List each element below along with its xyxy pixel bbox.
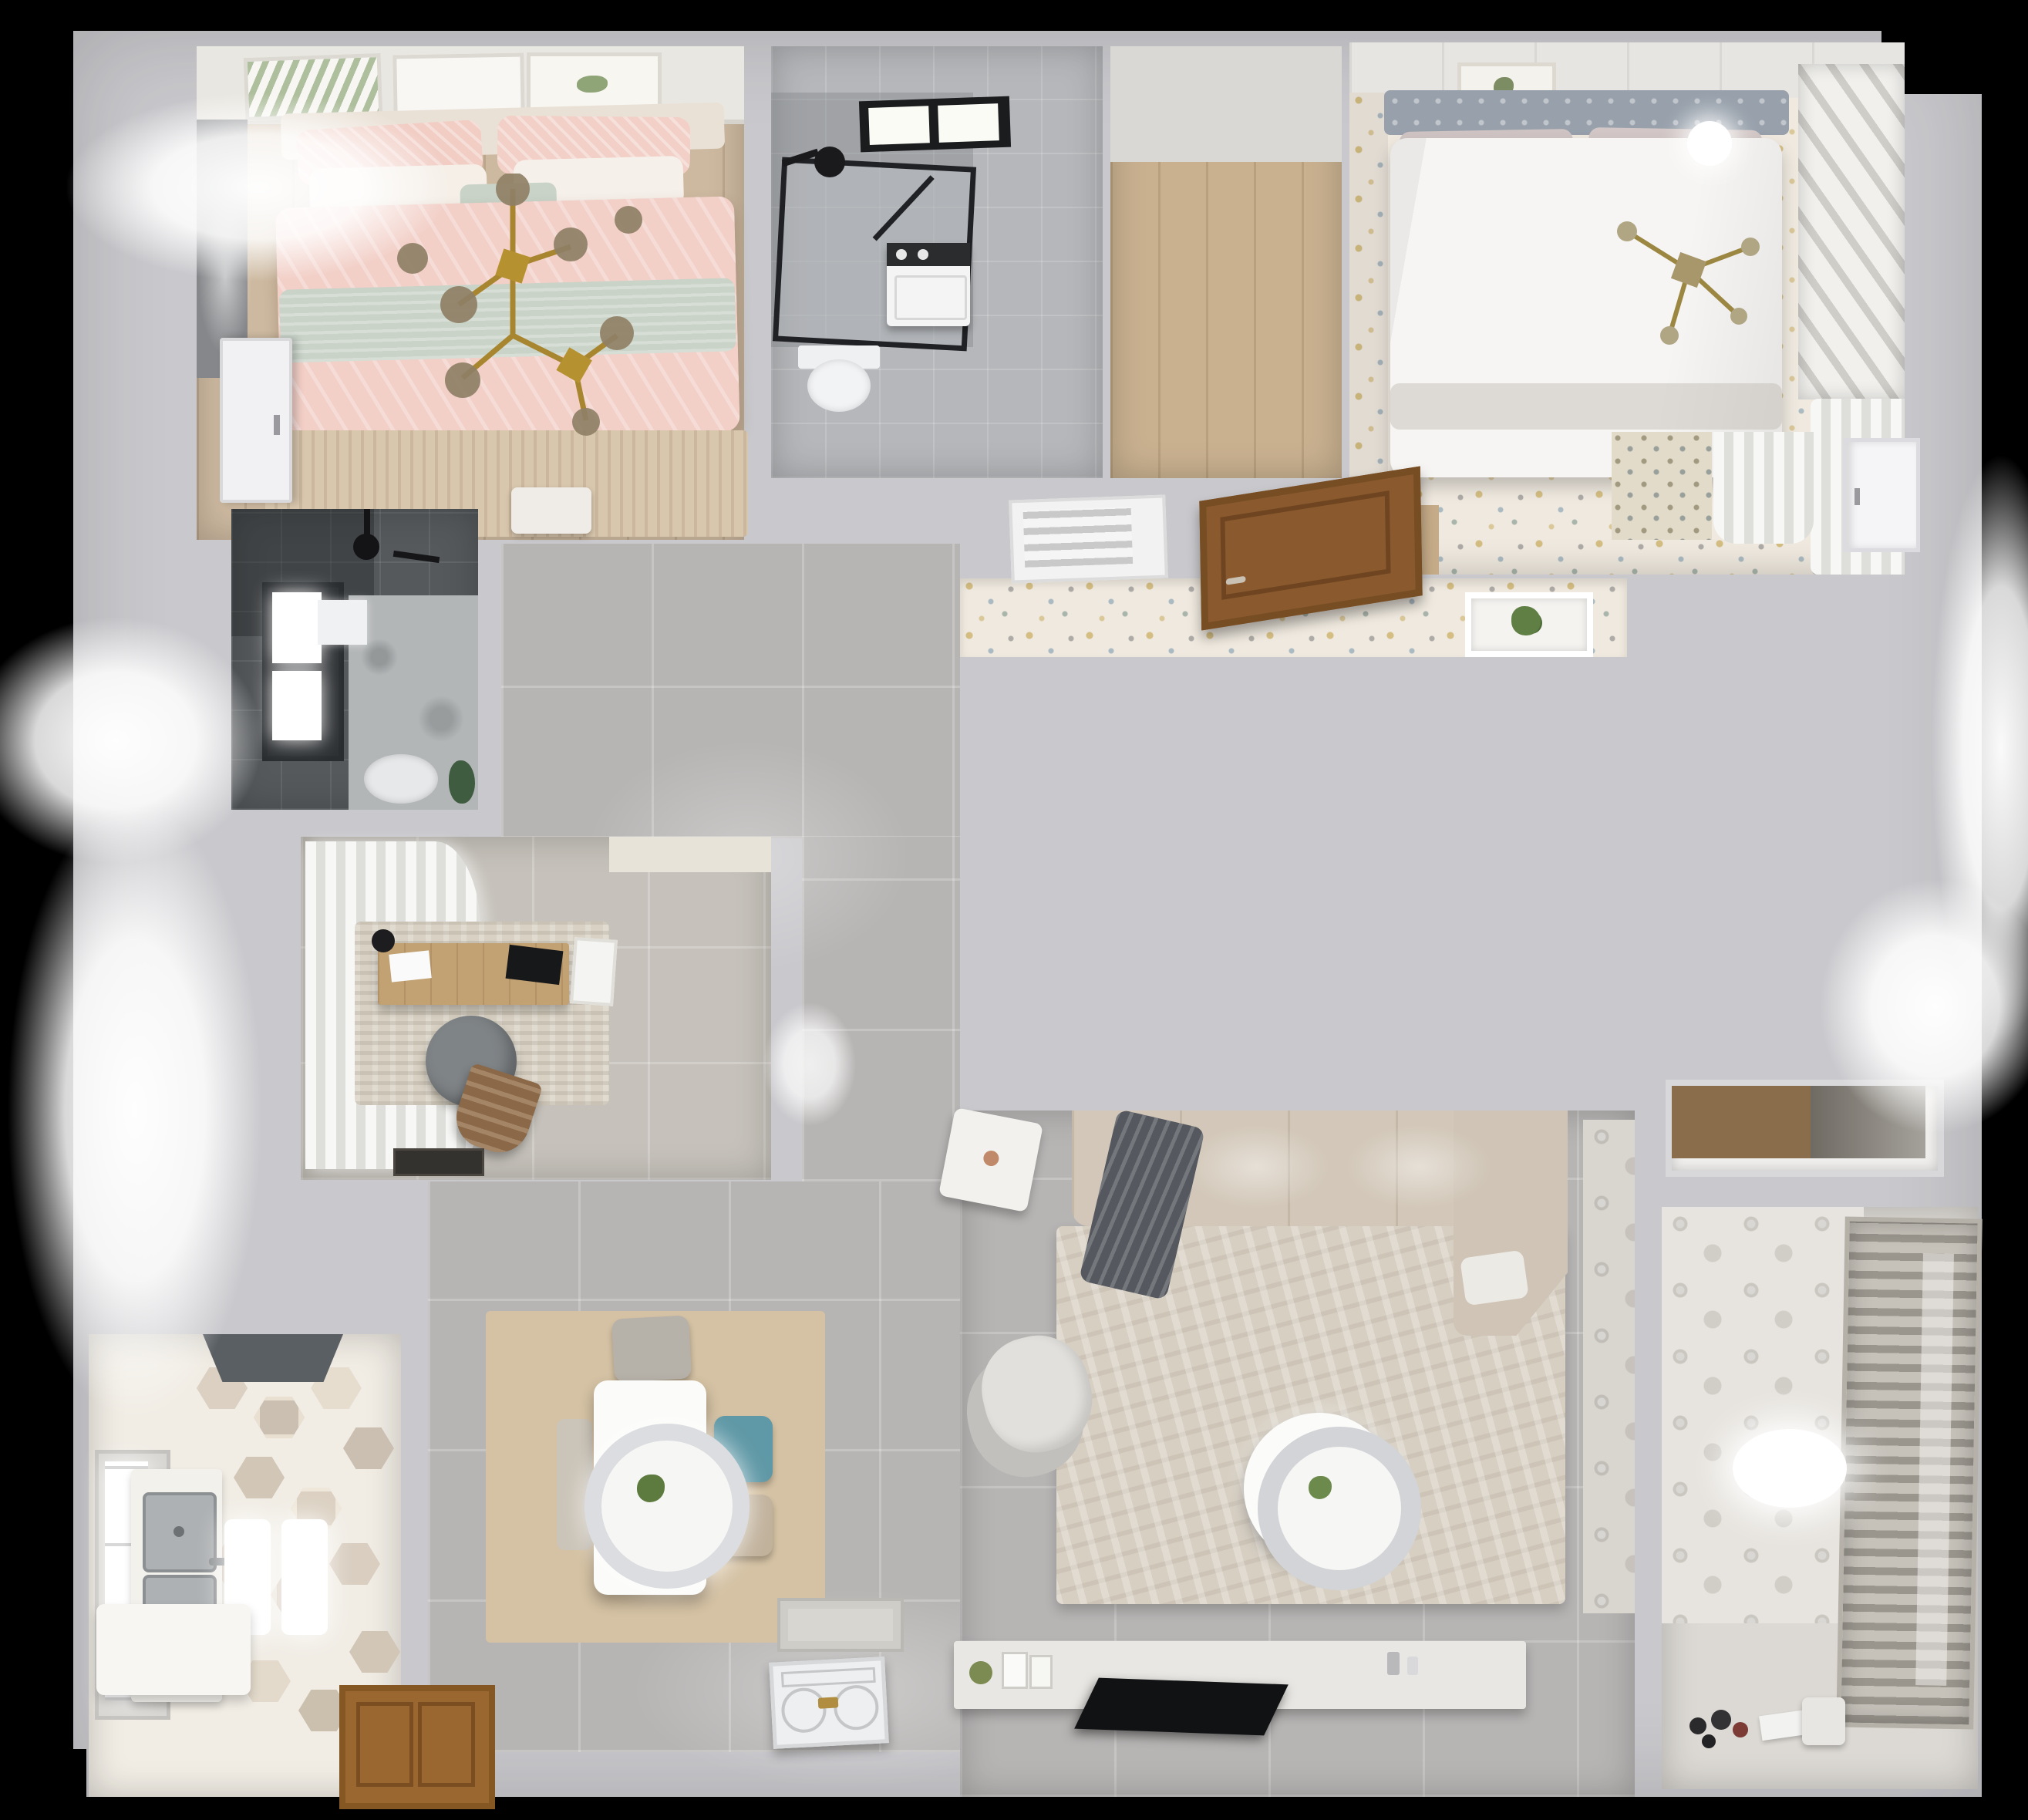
gold-door-handle bbox=[818, 1697, 839, 1708]
washer-knob bbox=[896, 249, 907, 260]
sink-drain bbox=[173, 1526, 184, 1537]
wall-bench bbox=[609, 837, 771, 872]
side-table bbox=[938, 1107, 1043, 1212]
toilet bbox=[798, 345, 880, 413]
duvet-fold bbox=[1390, 383, 1782, 430]
plant bbox=[449, 760, 475, 804]
door-panel bbox=[418, 1702, 475, 1787]
headboard-tufted bbox=[1384, 90, 1789, 135]
door-handle bbox=[274, 415, 280, 435]
ceiling-light bbox=[1687, 121, 1732, 166]
room-closet-hall bbox=[1110, 46, 1342, 478]
table-plant bbox=[1309, 1476, 1332, 1499]
room-dining bbox=[486, 1311, 856, 1643]
mirror bbox=[318, 600, 367, 645]
skylight bbox=[859, 96, 1011, 153]
room-storage-niche bbox=[1666, 1080, 1944, 1177]
roller-blind-window bbox=[1836, 1216, 1983, 1729]
door-arc-motif bbox=[780, 1687, 827, 1734]
room-living bbox=[960, 1111, 1635, 1797]
room-shower bbox=[231, 509, 478, 810]
gold-chandelier bbox=[389, 174, 644, 436]
decor-vase bbox=[982, 1149, 1000, 1167]
desk-speaker bbox=[372, 929, 395, 952]
nightstand bbox=[511, 487, 591, 534]
chair-gray bbox=[611, 1315, 692, 1382]
wood-floor bbox=[1110, 162, 1342, 478]
cutaway-notch-bottom-left bbox=[0, 1749, 86, 1820]
monitor bbox=[506, 945, 564, 985]
range-hood bbox=[203, 1334, 343, 1382]
hex-tile bbox=[349, 1629, 400, 1675]
washer-knob bbox=[918, 249, 928, 260]
hex-tile bbox=[234, 1454, 285, 1501]
coffee-table bbox=[1244, 1413, 1395, 1564]
double-sink bbox=[143, 1492, 217, 1572]
door-panel-line bbox=[781, 1667, 876, 1687]
corridor-upper bbox=[501, 544, 960, 838]
air-vent-grille bbox=[1009, 494, 1168, 583]
front-door-ornate bbox=[769, 1657, 889, 1749]
washing-machine bbox=[887, 243, 970, 326]
rain-shower-head bbox=[814, 147, 845, 177]
cabinet-shadow bbox=[1811, 1086, 1925, 1158]
sheer-curtain-strip bbox=[1713, 432, 1814, 544]
plant-niche bbox=[1465, 592, 1593, 657]
island-counter bbox=[96, 1604, 251, 1695]
toilet-bowl bbox=[807, 359, 871, 412]
motif-wallpaper bbox=[1662, 1207, 1864, 1623]
skylight-pane bbox=[938, 103, 999, 143]
inner-doormat bbox=[777, 1598, 904, 1652]
art-leaf-motif bbox=[577, 76, 608, 93]
toilet bbox=[364, 754, 438, 804]
motif-tile-strip bbox=[1583, 1120, 1635, 1613]
balcony-door bbox=[1843, 438, 1920, 552]
decor-frame bbox=[1002, 1652, 1028, 1689]
hex-tile bbox=[343, 1425, 394, 1471]
floorplan-stage bbox=[0, 0, 2028, 1820]
toy bbox=[1733, 1722, 1748, 1737]
shower-pipe bbox=[364, 509, 370, 538]
sofa-cushion bbox=[1460, 1250, 1529, 1306]
doormat bbox=[393, 1148, 484, 1176]
mosaic-wall-strip bbox=[1612, 432, 1712, 540]
washer-panel bbox=[887, 243, 970, 266]
white-door bbox=[220, 338, 292, 503]
corridor-mid bbox=[802, 837, 960, 1181]
door-panel bbox=[356, 1702, 413, 1787]
window-pane bbox=[272, 671, 322, 740]
toy bbox=[1702, 1734, 1716, 1748]
louver-shutter-wall bbox=[1798, 64, 1905, 399]
wood-cabinet bbox=[1672, 1086, 1811, 1158]
storage-bin bbox=[1802, 1697, 1845, 1745]
flat-tv bbox=[1074, 1678, 1289, 1736]
glass-edge bbox=[873, 175, 935, 241]
window-light-slit bbox=[1915, 1253, 1954, 1686]
window-pane bbox=[272, 592, 322, 663]
door-arc-motif bbox=[833, 1684, 880, 1731]
closet-upper-wall bbox=[1110, 46, 1342, 162]
door-panel bbox=[1220, 490, 1390, 600]
skylight-pane bbox=[868, 106, 930, 145]
oval-ceiling-lamp bbox=[1733, 1429, 1847, 1508]
toy bbox=[1689, 1717, 1706, 1734]
room-laundry-balcony bbox=[1662, 1207, 1978, 1789]
gold-chandelier bbox=[1604, 185, 1774, 355]
vent-slats bbox=[1023, 507, 1133, 568]
mosaic-strip bbox=[1349, 93, 1388, 524]
canvas-board bbox=[570, 937, 618, 1006]
room-top-bathroom bbox=[771, 46, 1103, 478]
decor-items bbox=[1387, 1652, 1400, 1675]
hex-tile bbox=[254, 1394, 305, 1441]
plant bbox=[1511, 606, 1541, 635]
decor-frame bbox=[1029, 1655, 1053, 1689]
hex-tile bbox=[329, 1541, 380, 1587]
toy bbox=[1711, 1710, 1731, 1730]
pendant-plant bbox=[637, 1475, 665, 1502]
decor-items bbox=[1407, 1657, 1418, 1675]
room-study bbox=[301, 837, 771, 1180]
ceiling-light-reflection bbox=[281, 1519, 328, 1635]
papers bbox=[389, 950, 431, 982]
coffee-table-ring bbox=[1258, 1427, 1421, 1590]
kitchen-wood-door bbox=[339, 1685, 495, 1809]
washer-lines bbox=[894, 275, 967, 320]
shower-fitting bbox=[393, 551, 440, 563]
door-handle bbox=[1855, 488, 1860, 505]
pendant-lamp-ring bbox=[584, 1424, 750, 1589]
decor-green-bottle bbox=[969, 1661, 992, 1684]
desk bbox=[378, 943, 569, 1005]
